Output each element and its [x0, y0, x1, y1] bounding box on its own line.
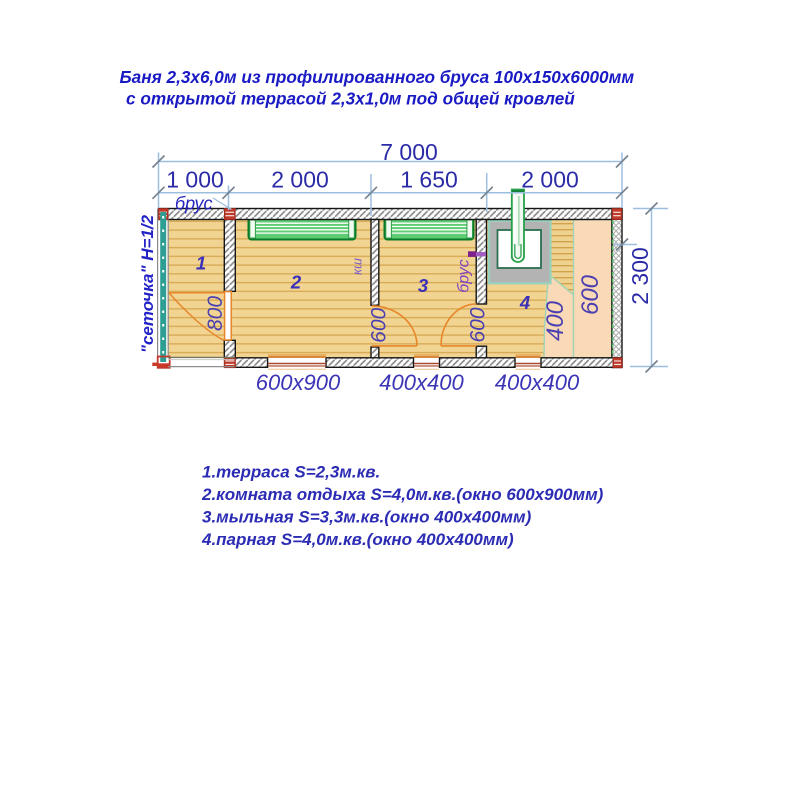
svg-text:600: 600 — [368, 307, 391, 342]
svg-text:400: 400 — [542, 300, 569, 341]
svg-text:400х400: 400х400 — [379, 370, 464, 395]
svg-text:800: 800 — [204, 296, 227, 331]
svg-text:4.парная S=4,0м.кв.(окно 400х4: 4.парная S=4,0м.кв.(окно 400х400мм) — [201, 530, 514, 549]
svg-text:600х900: 600х900 — [256, 370, 341, 395]
svg-text:2 300: 2 300 — [627, 247, 653, 305]
svg-text:2 000: 2 000 — [521, 167, 579, 193]
svg-text:2: 2 — [290, 272, 302, 293]
svg-text:2.комната отдыха S=4,0м.кв.(ок: 2.комната отдыха S=4,0м.кв.(окно 600х900… — [201, 485, 604, 504]
svg-text:7 000: 7 000 — [380, 139, 438, 165]
svg-text:1 650: 1 650 — [400, 167, 458, 193]
svg-text:1 000: 1 000 — [166, 167, 224, 193]
svg-text:400х400: 400х400 — [495, 370, 580, 395]
svg-text:1: 1 — [196, 253, 206, 274]
svg-text:брус: брус — [175, 194, 213, 214]
svg-text:брус: брус — [456, 259, 473, 292]
svg-text:3: 3 — [418, 275, 429, 296]
svg-text:"сеточка" Н=1/2: "сеточка" Н=1/2 — [138, 214, 157, 353]
svg-text:600: 600 — [467, 307, 490, 342]
svg-text:1.терраса S=2,3м.кв.: 1.терраса S=2,3м.кв. — [202, 463, 380, 482]
svg-text:2 000: 2 000 — [271, 167, 329, 193]
svg-text:3.мыльная S=3,3м.кв.(окно 400х: 3.мыльная S=3,3м.кв.(окно 400х400мм) — [202, 508, 532, 527]
svg-text:600: 600 — [577, 274, 604, 315]
svg-text:с открытой террасой 2,3х1,0м п: с открытой террасой 2,3х1,0м под общей к… — [126, 89, 575, 109]
svg-text:кш: кш — [350, 258, 365, 275]
svg-text:Баня 2,3х6,0м из профилированн: Баня 2,3х6,0м из профилированного бруса … — [120, 67, 635, 87]
svg-text:4: 4 — [519, 292, 530, 313]
